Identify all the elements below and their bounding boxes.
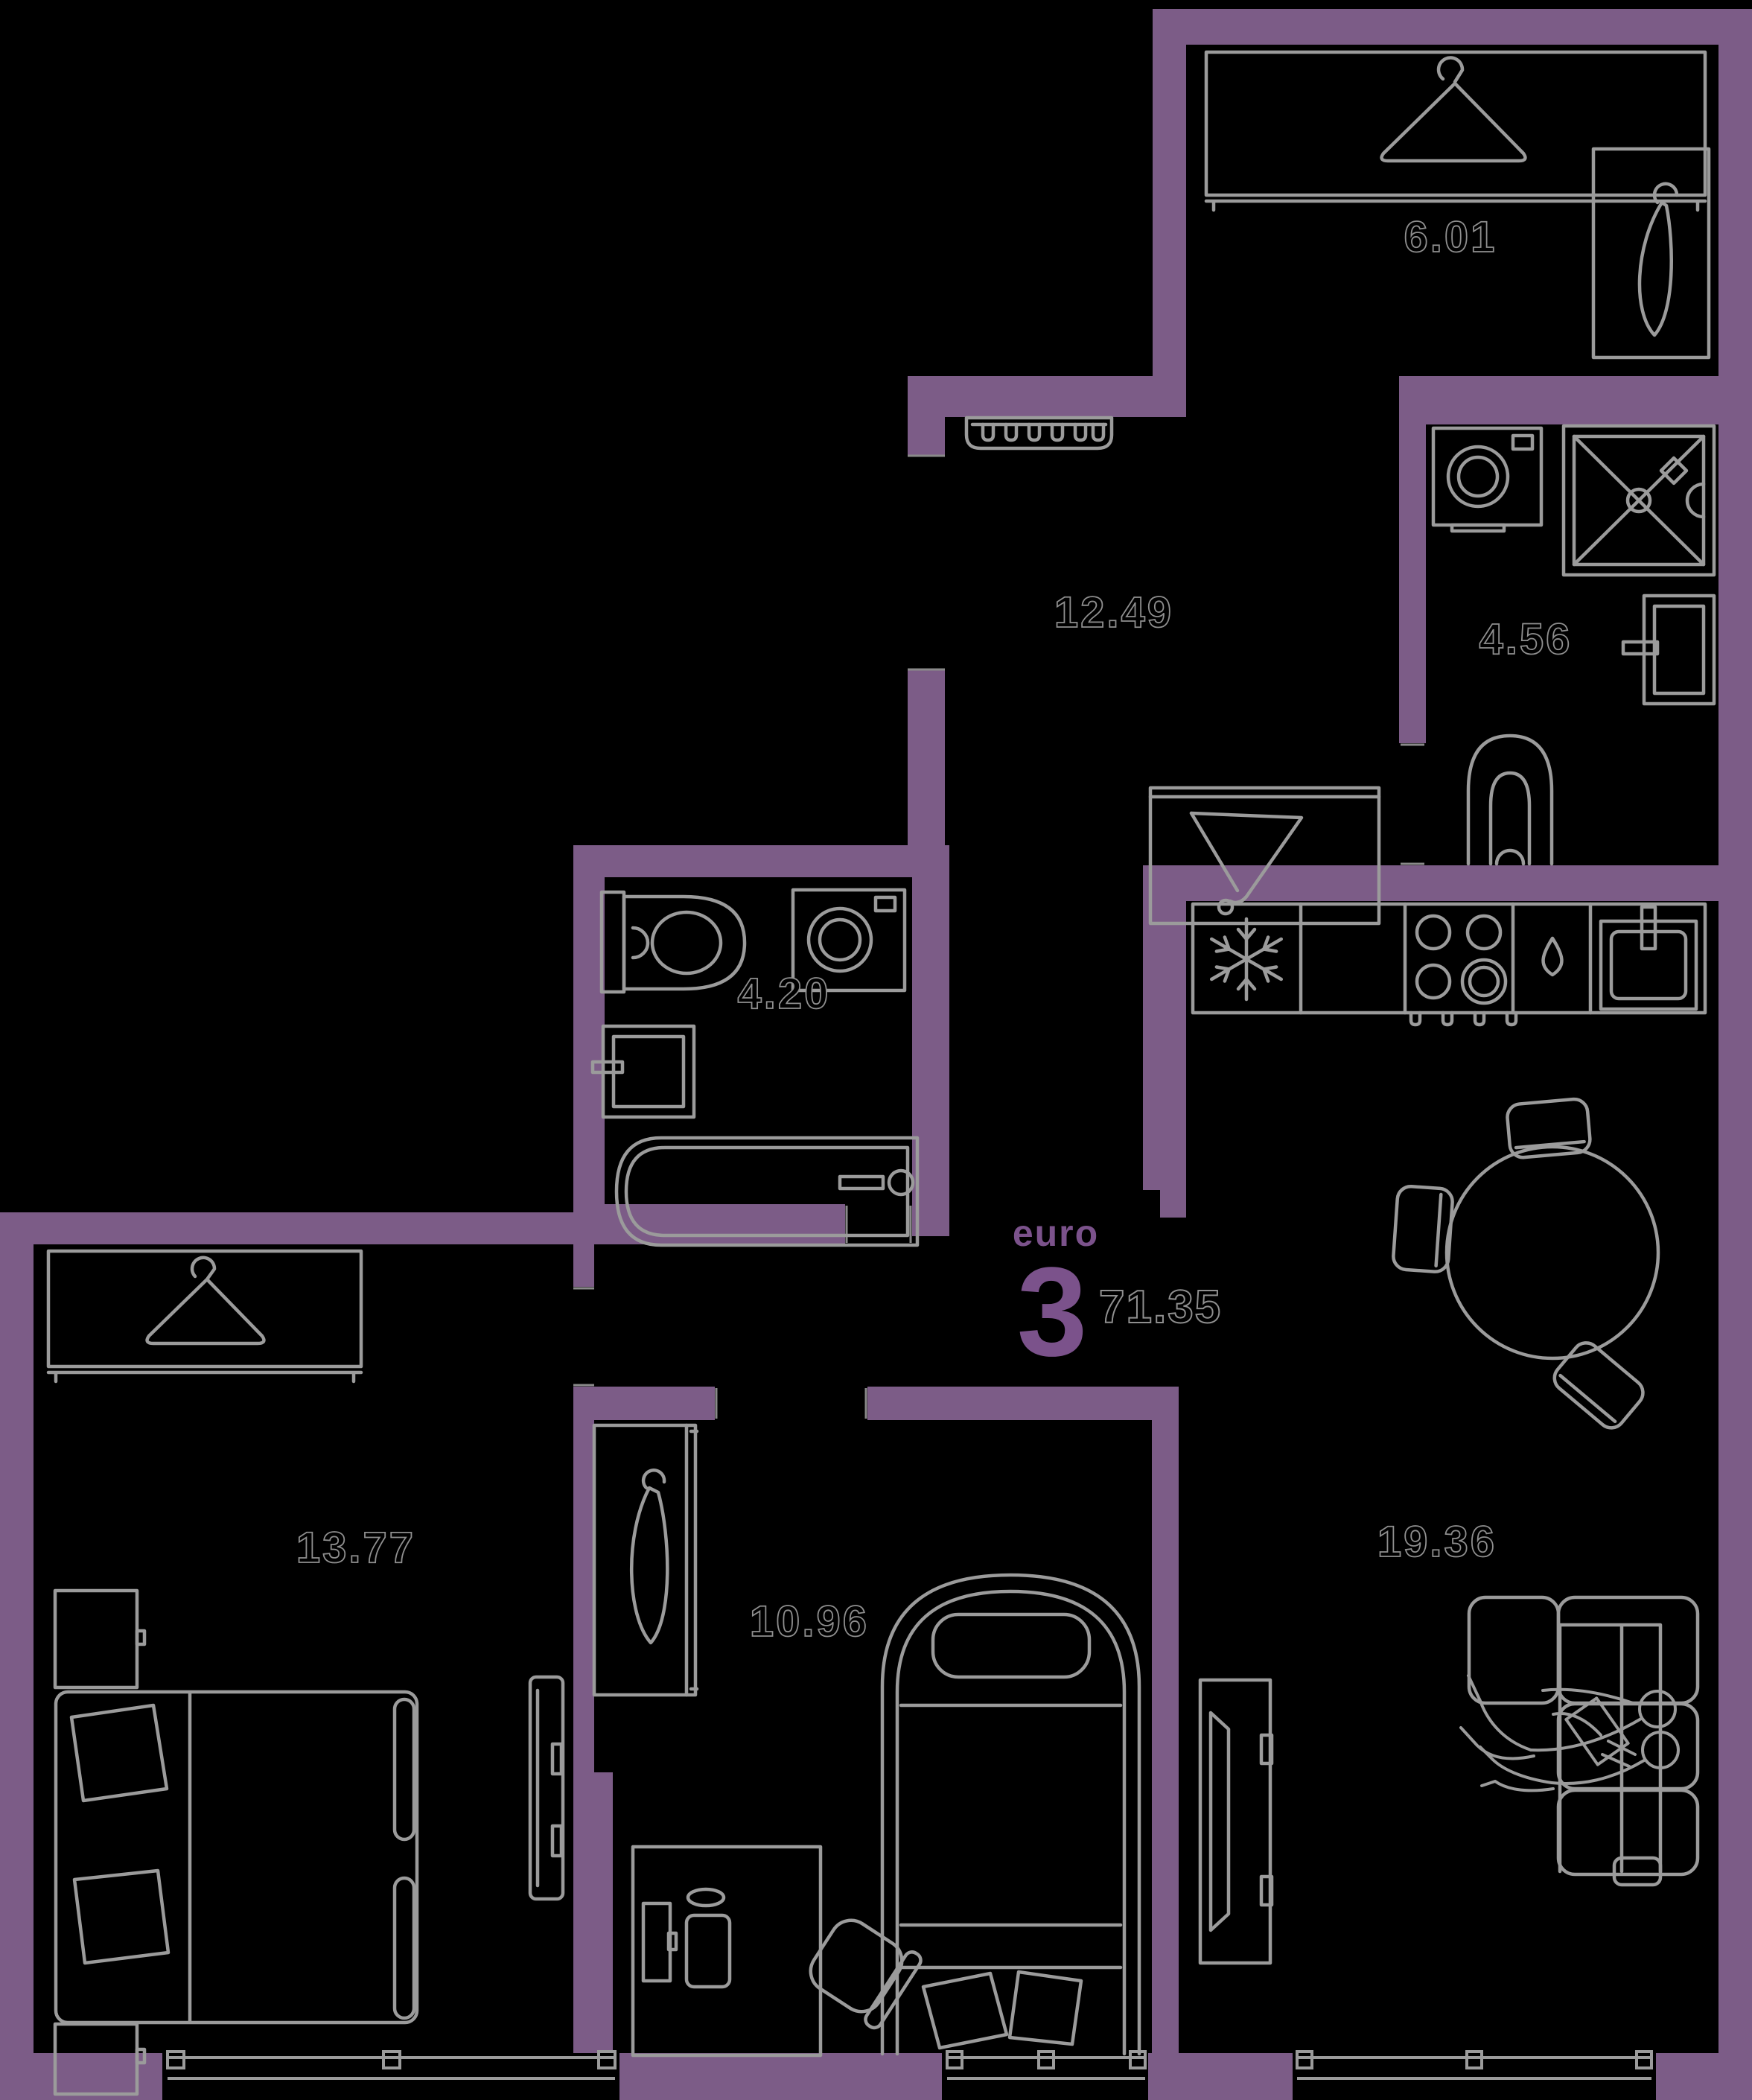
wall-outer-right: [1718, 9, 1752, 2100]
wall-bedroom-top: [0, 1212, 573, 1244]
wall-bottom-pier-3: [1148, 2053, 1293, 2100]
wall-bottom-pier-2: [619, 2053, 942, 2100]
wall-outer-left: [0, 1212, 34, 2100]
wall-childroom-living-divider: [1152, 1387, 1179, 2053]
wall-top: [1153, 9, 1752, 45]
unit-total-area: 71.35: [1099, 1282, 1222, 1333]
wall-entry-jamb-top: [908, 376, 945, 456]
room-area-shower-room: 4.56: [1479, 615, 1573, 664]
wall-shower-room-top: [1399, 376, 1718, 424]
wall-shower-room-left: [1399, 406, 1426, 743]
floor-plan: 6.01 12.49 4.56 4.20 13.77 10.96 19.36 e…: [0, 0, 1752, 2100]
wall-bath-bottom: [573, 1204, 845, 1244]
floor-plan-page: 6.01 12.49 4.56 4.20 13.77 10.96 19.36 e…: [0, 0, 1752, 2100]
room-area-bedroom: 13.77: [296, 1524, 415, 1572]
unit-format-rooms: 3: [1017, 1241, 1088, 1383]
wall-closet-left: [1153, 9, 1186, 376]
wall-bottom-pier-4: [1656, 2053, 1752, 2100]
wall-bath-left: [573, 845, 605, 1244]
plan-background: [0, 0, 1752, 2100]
wall-bedroom-divider-c: [573, 1772, 613, 2053]
wall-childroom-top-right: [867, 1387, 1179, 1420]
wall-bath-top: [573, 845, 949, 877]
wall-hall-top: [908, 376, 1186, 417]
wall-bedroom-divider-b: [573, 1387, 594, 1772]
room-area-living-kitchen: 19.36: [1377, 1518, 1497, 1566]
wall-childroom-top-left: [573, 1387, 715, 1420]
room-area-bathroom: 4.20: [738, 970, 831, 1018]
room-area-child-room: 10.96: [750, 1597, 869, 1646]
room-area-wardrobe-room: 6.01: [1404, 213, 1497, 261]
room-area-hallway: 12.49: [1054, 588, 1173, 637]
wall-bedroom-divider-a: [573, 1244, 594, 1287]
wall-hall-kitchen-step: [1160, 1190, 1186, 1218]
